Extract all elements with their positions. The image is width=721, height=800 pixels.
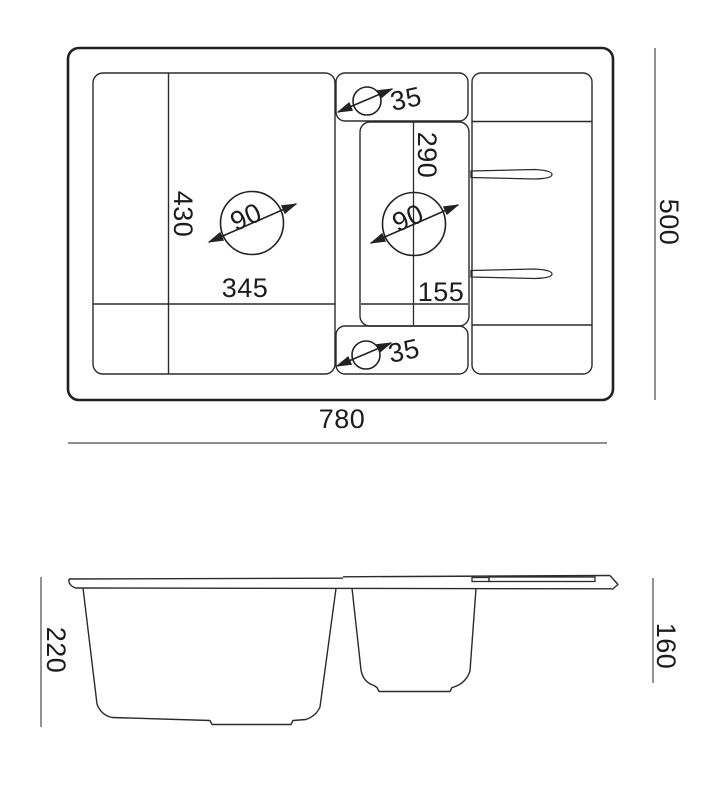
small-bowl-length-label: 290 — [412, 132, 442, 179]
small-drain-diameter-label: 90 — [388, 198, 429, 238]
overflow-groove-bottom — [471, 269, 552, 279]
rim-right-cap — [610, 576, 618, 590]
rim-top-line-left — [69, 578, 343, 579]
tap-hole-bottom — [352, 341, 380, 369]
main-drain-diameter-label: 90 — [226, 197, 267, 237]
main-bowl-plan — [93, 73, 335, 374]
side-view: 220 160 — [41, 576, 681, 728]
drawing-svg: 90 90 35 35 430 345 290 155 500 780 — [0, 0, 721, 800]
main-bowl-width-label: 345 — [222, 273, 269, 303]
small-depth-label: 160 — [651, 623, 681, 670]
tap-hole-bottom-leader — [337, 343, 391, 366]
tap-hole-bottom-label: 35 — [386, 333, 423, 369]
main-bowl-profile — [83, 588, 336, 725]
overflow-groove-top — [471, 170, 552, 180]
rim-left-cap — [69, 579, 75, 588]
tap-hole-top — [353, 87, 381, 115]
drainer-groove-step — [472, 578, 489, 582]
rim-underside-line — [75, 588, 612, 589]
small-bowl-profile — [352, 588, 476, 692]
drainer-groove-channel — [489, 577, 595, 582]
tap-hole-top-leader — [338, 89, 392, 112]
sink-outline-plan — [68, 48, 613, 400]
total-width-label: 780 — [319, 404, 366, 434]
tap-hole-top-label: 35 — [388, 81, 425, 117]
small-bowl-width-label: 155 — [418, 277, 465, 307]
main-depth-label: 220 — [41, 627, 71, 674]
right-ledge-plan — [472, 73, 592, 374]
main-bowl-depth-label: 430 — [168, 191, 198, 238]
sink-technical-drawing: 90 90 35 35 430 345 290 155 500 780 — [0, 0, 721, 800]
total-depth-label: 500 — [654, 199, 684, 246]
top-view: 90 90 35 35 430 345 290 155 500 780 — [68, 48, 684, 443]
